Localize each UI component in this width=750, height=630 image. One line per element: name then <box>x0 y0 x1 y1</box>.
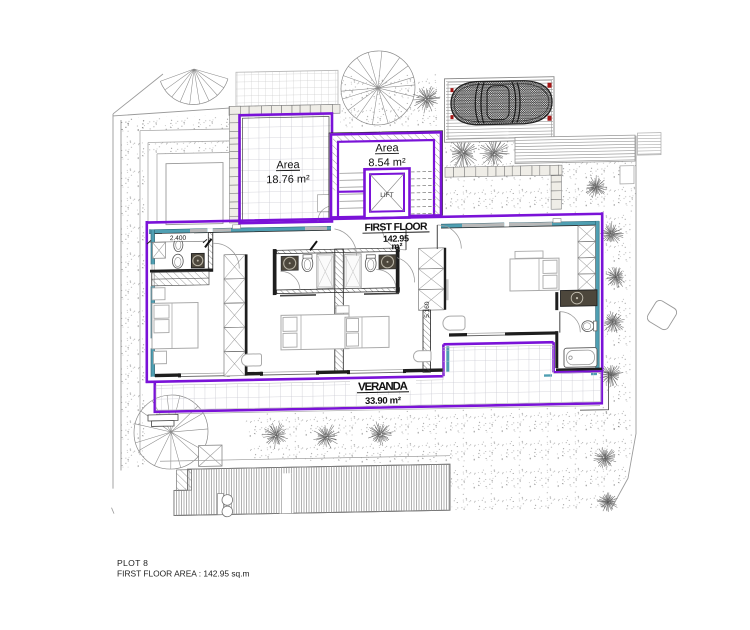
svg-text:m²: m² <box>392 241 403 251</box>
svg-text:33.90 m²: 33.90 m² <box>365 395 401 407</box>
svg-text:FIRST FLOOR AREA : 142.95 sq.m: FIRST FLOOR AREA : 142.95 sq.m <box>117 569 250 579</box>
svg-text:18.76 m²: 18.76 m² <box>266 173 310 186</box>
svg-text:Area: Area <box>375 142 399 154</box>
svg-text:PLOT 8: PLOT 8 <box>117 558 148 568</box>
svg-text:LIFT: LIFT <box>380 192 393 199</box>
svg-text:8.54 m²: 8.54 m² <box>368 157 406 170</box>
svg-text:Area: Area <box>276 159 300 171</box>
svg-text:5.160: 5.160 <box>424 301 431 318</box>
svg-text:2.400: 2.400 <box>170 235 187 242</box>
